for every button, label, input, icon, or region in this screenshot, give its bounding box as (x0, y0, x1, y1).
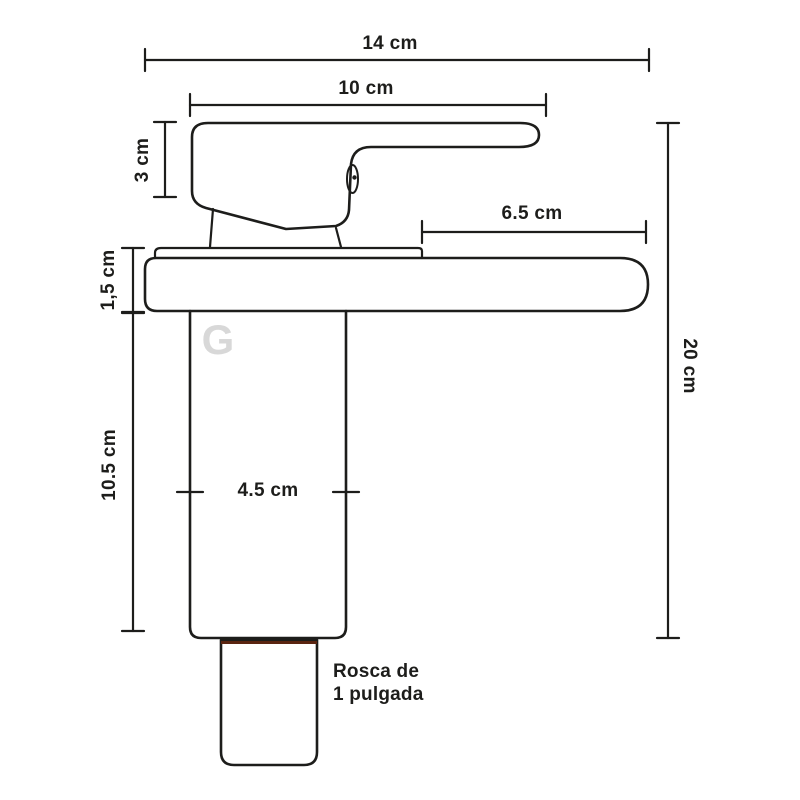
dim-line-handle-height (154, 122, 176, 197)
handle-base-left-edge (210, 209, 213, 247)
dim-label-total-height: 20 cm (678, 338, 700, 393)
handle-base-right-edge (336, 228, 341, 247)
handle-pivot-detail (347, 165, 358, 193)
dim-label-body-height: 10.5 cm (99, 429, 121, 501)
dim-line-total-height (657, 123, 679, 638)
dim-line-deck-thickness (122, 248, 144, 312)
faucet-deck-spout (145, 248, 648, 311)
diagram-canvas: G (0, 0, 800, 800)
dim-label-total-width: 14 cm (362, 33, 417, 55)
thread-note: Rosca de 1 pulgada (333, 660, 423, 706)
dim-label-handle-height: 3 cm (132, 138, 154, 183)
dim-line-body-height (122, 313, 144, 631)
brand-watermark-g: G (202, 316, 235, 363)
thread-inlet (221, 640, 317, 765)
dim-label-deck-thickness: 1,5 cm (98, 250, 120, 311)
handle-pivot-dot (352, 175, 356, 179)
thread-note-line1: Rosca de (333, 660, 423, 683)
dim-label-body-width: 4.5 cm (238, 480, 299, 502)
thread-note-line2: 1 pulgada (333, 683, 423, 706)
dim-label-spout-reach: 6.5 cm (502, 203, 563, 225)
faucet-handle (192, 123, 539, 247)
dim-label-handle-length: 10 cm (338, 78, 393, 100)
